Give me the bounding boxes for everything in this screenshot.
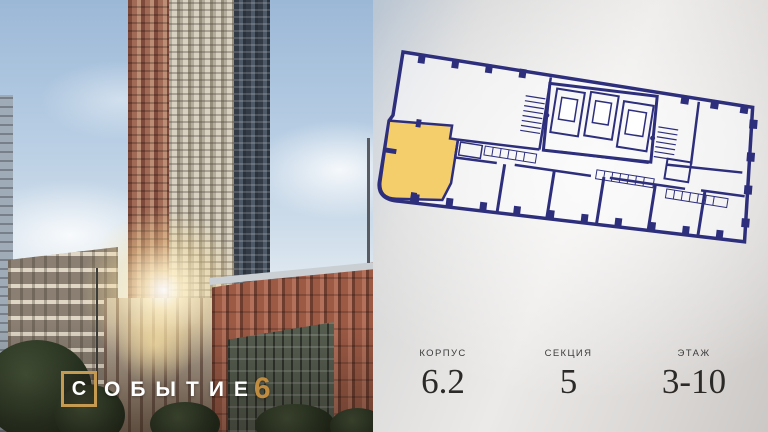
korpus-value: 6.2 bbox=[383, 364, 503, 399]
etazh-value: 3-10 bbox=[634, 364, 754, 399]
logo-boxed-letter: С bbox=[72, 379, 86, 399]
sektsiya-label: СЕКЦИЯ bbox=[509, 348, 629, 359]
elevator-cab bbox=[558, 97, 577, 121]
korpus-label: КОРПУС bbox=[383, 348, 503, 359]
info-korpus: КОРПУС 6.2 bbox=[383, 348, 503, 399]
logo-number: 6 bbox=[254, 374, 271, 404]
plan-panel: КОРПУС 6.2 СЕКЦИЯ 5 ЭТАЖ 3-10 bbox=[373, 0, 768, 432]
tower-facade-terracotta bbox=[128, 0, 169, 312]
elevator-cab bbox=[625, 110, 647, 137]
building-photo: С ОБЫТИЕ 6 bbox=[0, 0, 373, 432]
sektsiya-value: 5 bbox=[509, 364, 629, 399]
etazh-label: ЭТАЖ bbox=[634, 348, 754, 359]
apartment-card: С ОБЫТИЕ 6 bbox=[0, 0, 768, 432]
logo-text: ОБЫТИЕ bbox=[104, 379, 258, 400]
main-tower bbox=[128, 0, 270, 312]
floor-plan bbox=[373, 0, 768, 310]
logo-letter-box: С bbox=[61, 371, 97, 407]
tower-facade-slate bbox=[234, 0, 270, 312]
unit-info: КОРПУС 6.2 СЕКЦИЯ 5 ЭТАЖ 3-10 bbox=[383, 348, 754, 399]
info-etazh: ЭТАЖ 3-10 bbox=[634, 348, 754, 399]
elevator-cab bbox=[592, 101, 611, 125]
construction-mast bbox=[367, 138, 370, 263]
tower-facade-cream bbox=[169, 0, 234, 312]
brand-logo: С ОБЫТИЕ 6 bbox=[61, 371, 271, 407]
info-sektsiya: СЕКЦИЯ 5 bbox=[509, 348, 629, 399]
